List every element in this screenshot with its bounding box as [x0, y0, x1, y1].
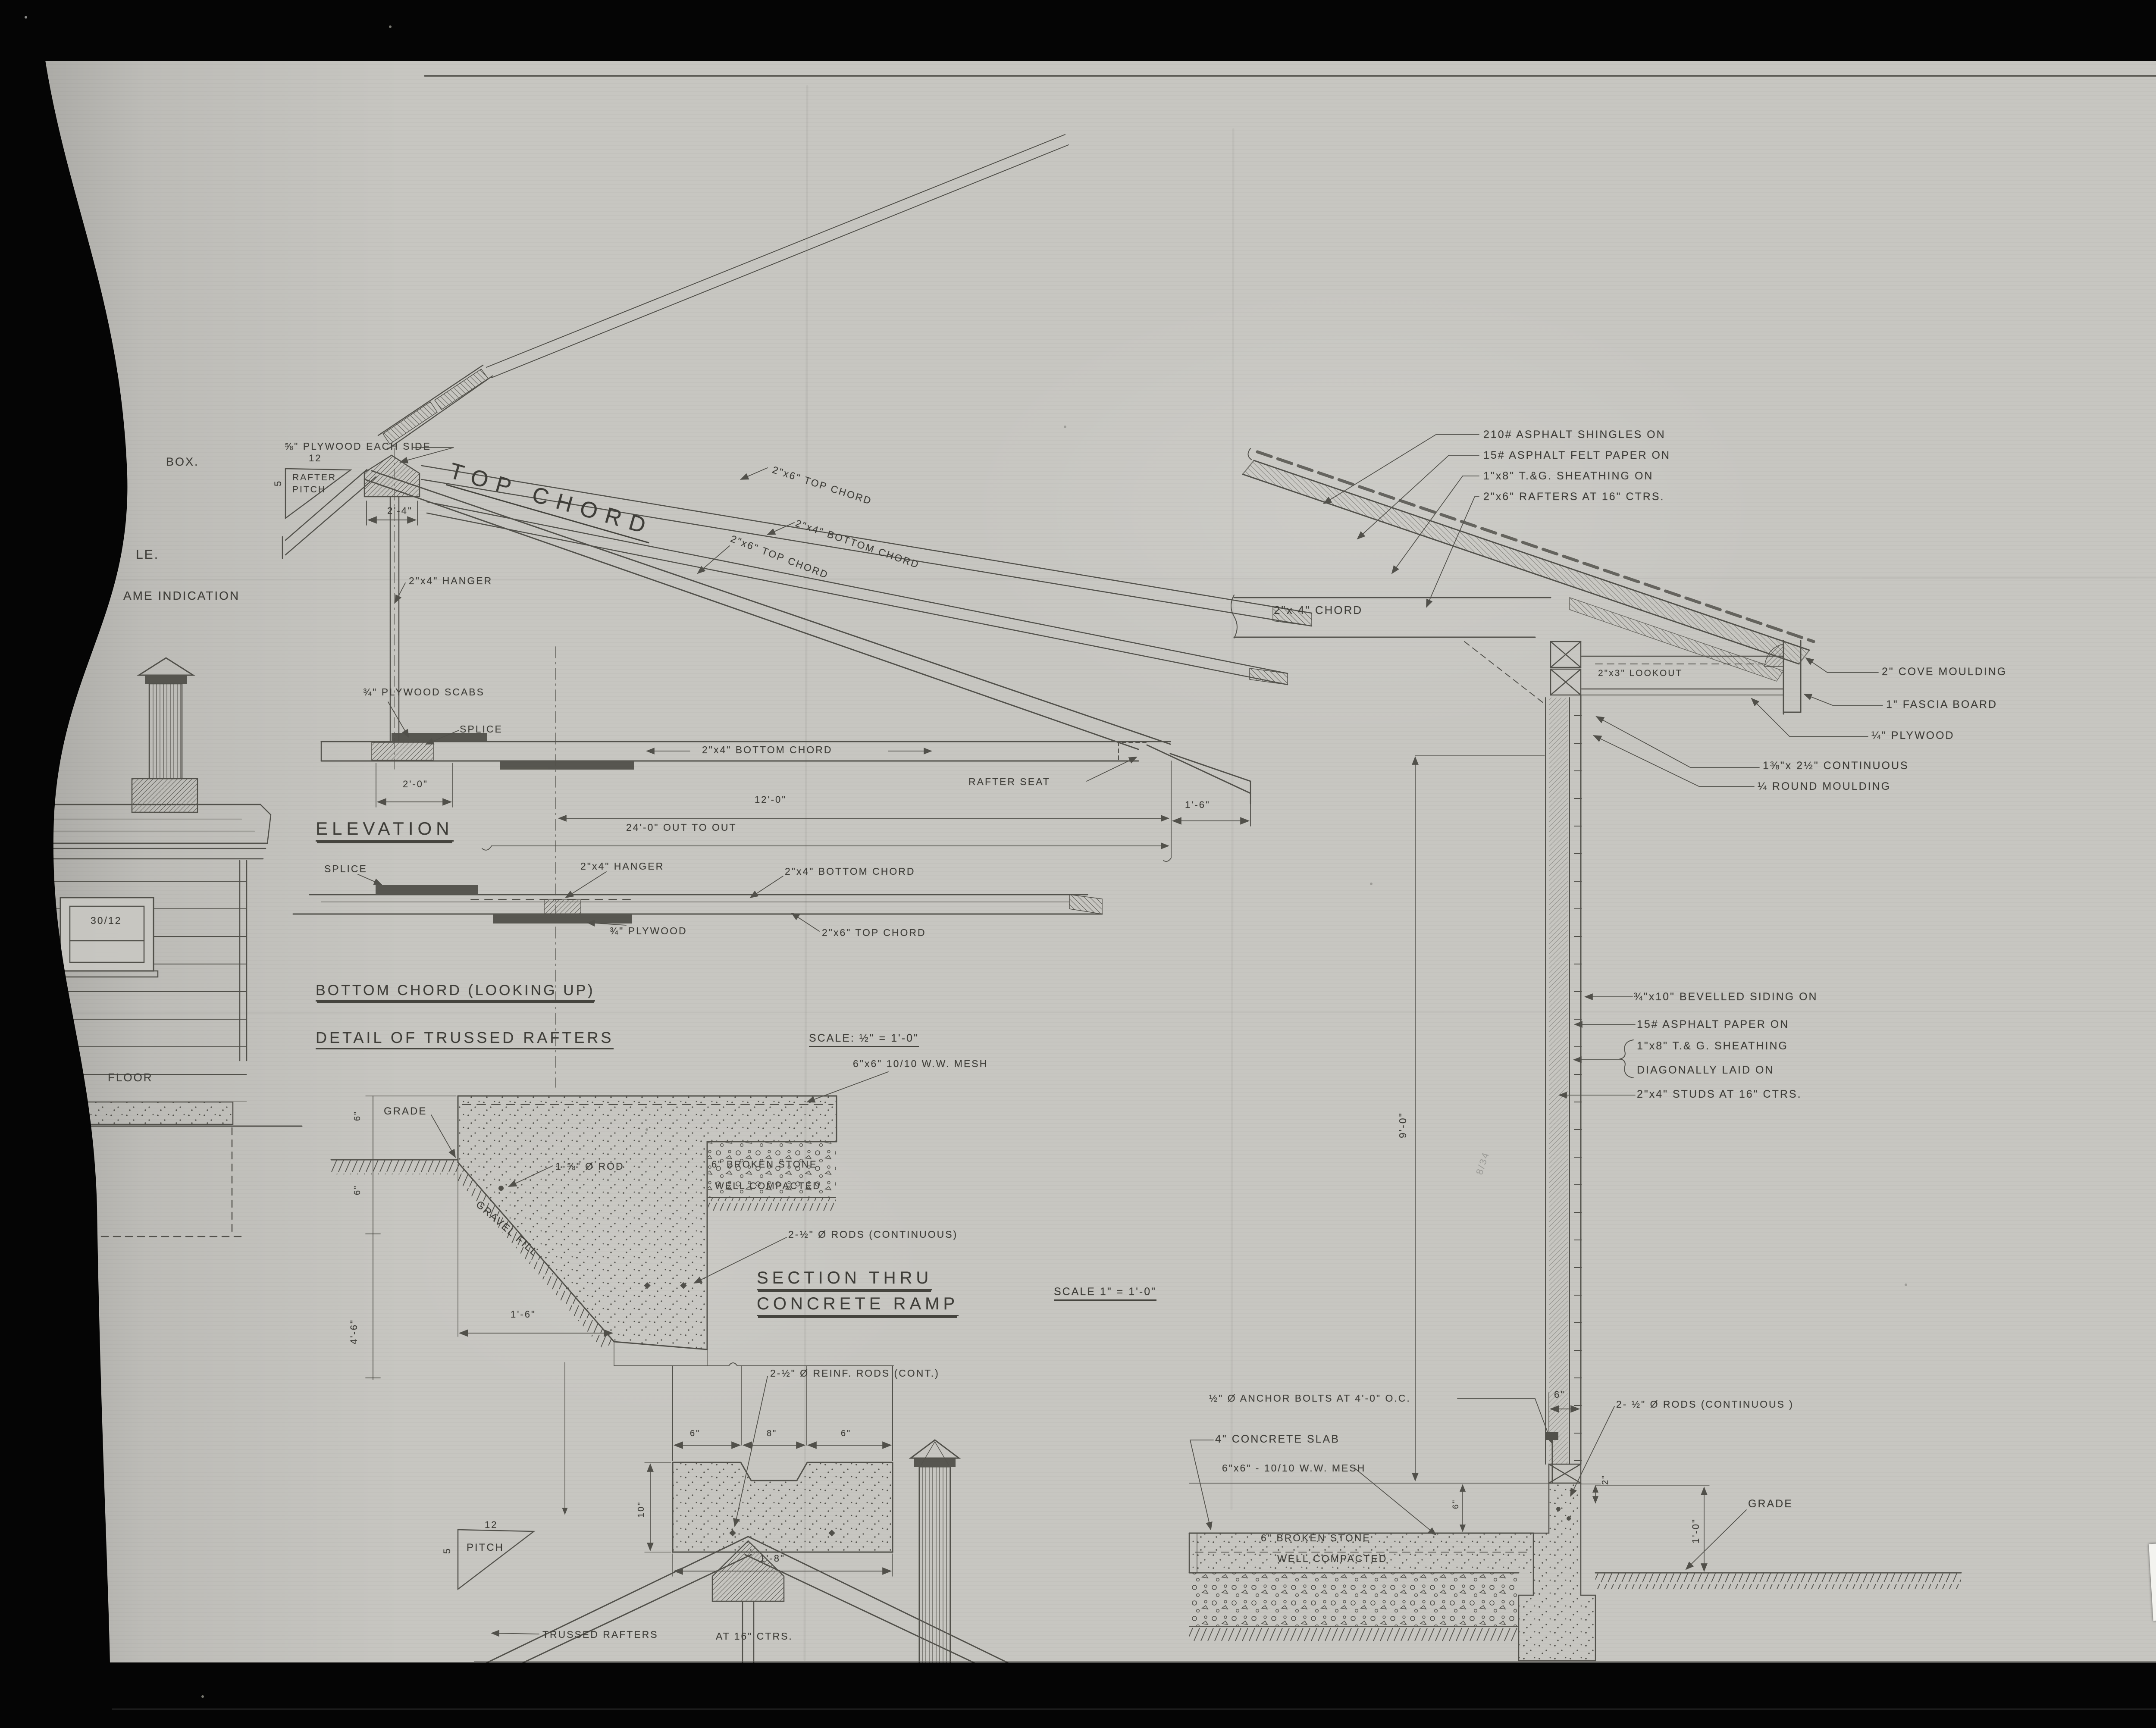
- shingles-label: 210# ASPHALT SHINGLES ON: [1483, 429, 1666, 441]
- dim-1ft6-elev: 1'-6": [1185, 799, 1210, 811]
- dim-1ft0: 1'-0": [1690, 1518, 1702, 1543]
- cutoff-note-le: LE.: [136, 548, 159, 562]
- top-chord-title: TOP CHORD: [446, 458, 657, 544]
- dim-1ft8: 1'-8": [760, 1553, 785, 1564]
- elev-top-chord-label: 2"x6" TOP CHORD: [729, 533, 830, 581]
- splice-label-elev: SPLICE: [460, 723, 503, 735]
- window-size-note: 30/12: [91, 915, 122, 927]
- continuous-label: 1⅜"x 2½" CONTINUOUS: [1763, 760, 1909, 772]
- dim-6in-a: 6": [353, 1111, 363, 1121]
- scanned-blueprint-page: { "document": { "type": "architectural w…: [0, 0, 2156, 1728]
- mesh-label-slab: 6"x6" - 10/10 W.W. MESH: [1222, 1462, 1366, 1474]
- plywood-scabs-label: ¾" PLYWOOD SCABS: [363, 686, 485, 698]
- detail-bottom-chord-label: 2"x4" BOTTOM CHORD: [794, 517, 921, 571]
- studs-label: 2"x4" STUDS AT 16" CTRS.: [1637, 1088, 1802, 1101]
- dim-2ft4: 2'-4": [387, 505, 413, 517]
- broken-stone-wall-2: WELL COMPACTED: [1277, 1553, 1387, 1565]
- cove-moulding-label: 2" COVE MOULDING: [1882, 666, 2007, 678]
- diagonally-laid-label: DIAGONALLY LAID ON: [1637, 1064, 1774, 1077]
- cutoff-note-box: BOX.: [166, 455, 199, 469]
- floor-note: FLOOR: [108, 1071, 153, 1084]
- hanger-label-elev: 2"x4" HANGER: [409, 575, 492, 587]
- asphalt-paper-label: 15# ASPHALT PAPER ON: [1637, 1018, 1789, 1031]
- rods-continuous-ramp: 2-½" Ø RODS (CONTINUOUS): [788, 1229, 958, 1240]
- dim-4ft6: 4'-6": [348, 1319, 360, 1344]
- felt-paper-label: 15# ASPHALT FELT PAPER ON: [1483, 449, 1670, 462]
- wall-sheathing-label: 1"x8" T.& G. SHEATHING: [1637, 1040, 1788, 1052]
- concrete-slab-label: 4" CONCRETE SLAB: [1215, 1433, 1340, 1446]
- round-moulding-label: ¼ ROUND MOULDING: [1758, 780, 1891, 793]
- bottom-chord-label-strip: 2"x4" BOTTOM CHORD: [785, 866, 915, 877]
- dim-24ft0: 24'-0" OUT TO OUT: [626, 822, 737, 833]
- dim-8in: 8": [767, 1429, 777, 1439]
- top-chord-label-strip: 2"x6" TOP CHORD: [822, 927, 926, 939]
- detail-top-chord-label: 2"x6" TOP CHORD: [771, 464, 874, 507]
- broken-stone-ramp-1: 6" BROKEN STONE: [711, 1159, 818, 1170]
- fascia-board-label: 1" FASCIA BOARD: [1886, 698, 1997, 711]
- pitch2-word: PITCH: [467, 1542, 504, 1554]
- section-thru-title-2: CONCRETE RAMP: [757, 1294, 959, 1316]
- anchor-bolts-label: ½" Ø ANCHOR BOLTS AT 4'-0" O.C.: [1209, 1393, 1411, 1404]
- grade-label-ramp: GRADE: [384, 1105, 427, 1118]
- gravel-fill-label: GRAVEL FILL: [473, 1199, 541, 1259]
- pitch1-word1: RAFTER: [292, 473, 336, 483]
- dim-6in-d: 6": [841, 1429, 851, 1439]
- quarter-plywood-label: ¼" PLYWOOD: [1871, 729, 1955, 742]
- pitch1-word2: PITCH: [292, 485, 326, 495]
- plywood-label-strip: ¾" PLYWOOD: [610, 925, 687, 937]
- dim-6in-c: 6": [690, 1429, 700, 1439]
- dim-2ft0: 2'-0": [403, 779, 428, 790]
- pitch1-run: 12: [309, 453, 322, 464]
- reinf-rods-label: 2-½" Ø REINF. RODS (CONT.): [770, 1368, 940, 1379]
- dim-6in-b: 6": [353, 1185, 363, 1195]
- rod-label-ramp: 1-⅝" Ø ROD: [555, 1161, 624, 1172]
- mesh-label-ramp: 6"x6" 10/10 W.W. MESH: [853, 1058, 988, 1070]
- section-thru-title-1: SECTION THRU: [757, 1268, 932, 1290]
- chord-2x4-label: 2"x 4" CHORD: [1274, 604, 1363, 617]
- cutoff-note-frame-indication: AME INDICATION: [123, 589, 240, 603]
- plywood-each-side-label: ⅝" PLYWOOD EACH SIDE: [285, 441, 431, 452]
- dim-9ft0: 9'-0": [1397, 1112, 1409, 1138]
- scale-one-inch: SCALE 1" = 1'-0": [1054, 1286, 1156, 1301]
- detail-trussed-rafters-title: DETAIL OF TRUSSED RAFTERS: [316, 1029, 614, 1049]
- drawing-annotations: BOX.LE.AME INDICATION30/12FLOOR⅝" PLYWOO…: [0, 0, 2156, 1728]
- rods-continuous-wall: 2- ½" Ø RODS (CONTINUOUS ): [1616, 1399, 1794, 1410]
- pencil-note: 8/34: [1474, 1150, 1492, 1176]
- bottom-chord-title: BOTTOM CHORD (LOOKING UP): [316, 982, 595, 1002]
- splice-label-strip: SPLICE: [324, 863, 367, 875]
- elev-bottom-chord-label: 2"x4" BOTTOM CHORD: [702, 744, 833, 756]
- dim-6in-slab: 6": [1451, 1499, 1461, 1509]
- broken-stone-wall-1: 6" BROKEN STONE: [1261, 1532, 1371, 1544]
- rafters-label: 2"x6" RAFTERS AT 16" CTRS.: [1483, 491, 1664, 503]
- dim-12ft0: 12'-0": [755, 794, 787, 805]
- grade-label-wall: GRADE: [1748, 1498, 1793, 1510]
- roof-sheathing-label: 1"x8" T.&G. SHEATHING ON: [1483, 470, 1653, 482]
- pitch1-rise: 5: [273, 480, 284, 486]
- scale-half-inch: SCALE: ½" = 1'-0": [809, 1032, 919, 1047]
- lookout-label: 2"x3" LOOKOUT: [1598, 668, 1683, 679]
- pitch2-run: 12: [485, 1519, 498, 1531]
- rafter-seat-label: RAFTER SEAT: [968, 776, 1050, 788]
- broken-stone-ramp-2: WELL COMPACTED: [715, 1180, 821, 1192]
- trussed-rafters-label: TRUSSED RAFTERS: [542, 1629, 658, 1640]
- at-16-ctrs-label: AT 16" CTRS.: [716, 1631, 793, 1642]
- dim-1ft6-ramp: 1'-6": [511, 1309, 536, 1320]
- dim-10in: 10": [636, 1501, 646, 1518]
- elevation-title: ELEVATION: [316, 818, 454, 842]
- hanger-label-strip: 2"x4" HANGER: [580, 861, 664, 872]
- dim-6in-wall: 6": [1554, 1389, 1565, 1400]
- siding-label: ¾"x10" BEVELLED SIDING ON: [1633, 991, 1818, 1003]
- dim-2in: 2": [1601, 1474, 1611, 1485]
- pitch2-rise: 5: [442, 1547, 453, 1554]
